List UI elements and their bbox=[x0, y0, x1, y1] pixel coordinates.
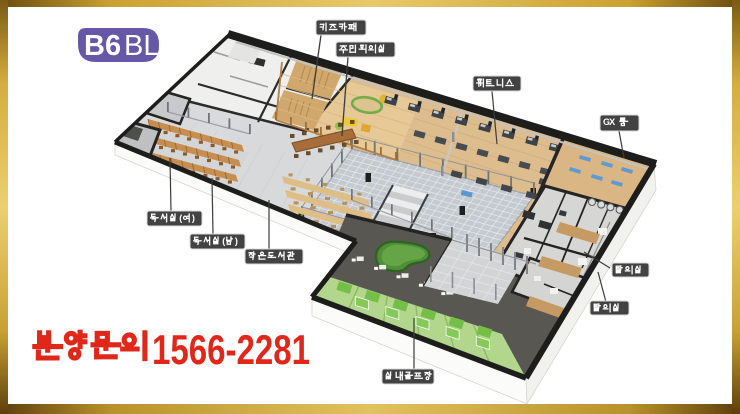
svg-text:X: X bbox=[609, 117, 615, 127]
svg-text:B6: B6 bbox=[84, 30, 121, 62]
svg-text:(: ( bbox=[179, 213, 182, 223]
svg-text:): ) bbox=[235, 236, 238, 246]
svg-text:(: ( bbox=[222, 236, 225, 246]
svg-text:BL: BL bbox=[124, 30, 159, 62]
svg-text:1566-2281: 1566-2281 bbox=[152, 326, 310, 373]
svg-text:): ) bbox=[192, 213, 195, 223]
